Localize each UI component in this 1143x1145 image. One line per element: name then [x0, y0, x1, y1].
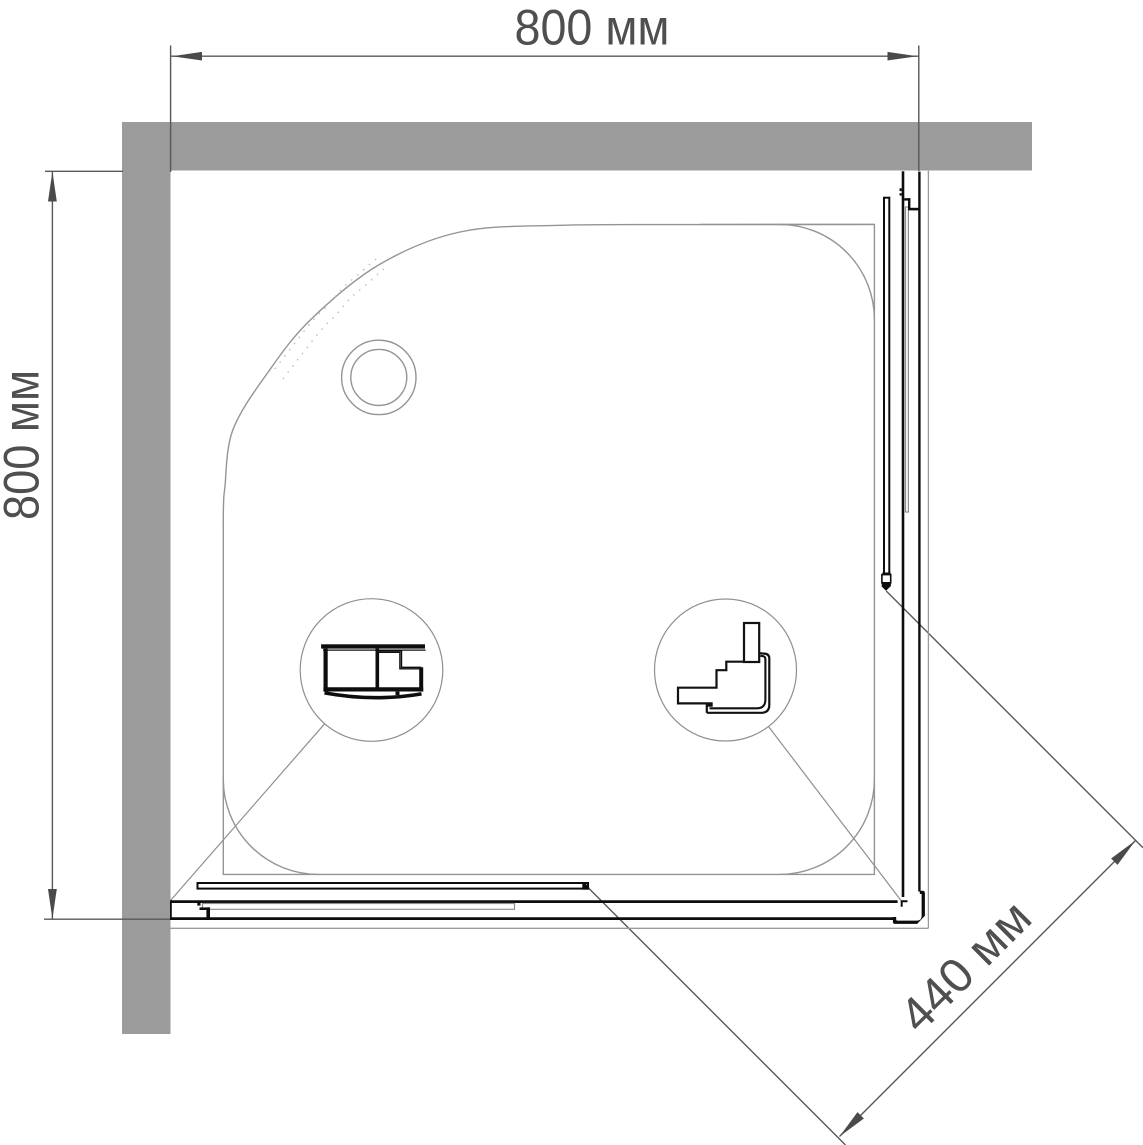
svg-text:800 мм: 800 мм — [0, 370, 50, 520]
svg-text:800 мм: 800 мм — [515, 0, 670, 56]
